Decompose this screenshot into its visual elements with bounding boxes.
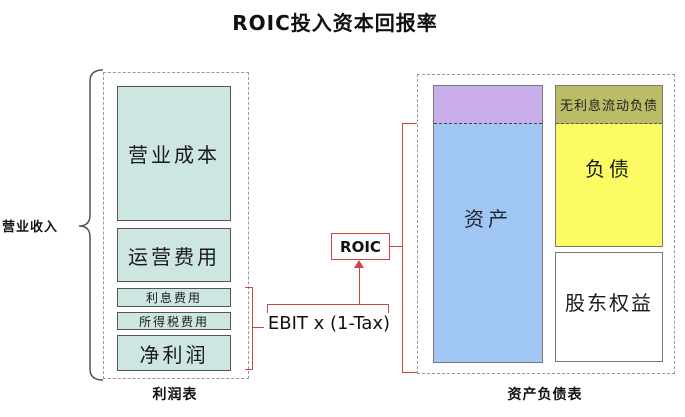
liabilities-column: 无利息流动负债 负债 [555,85,663,247]
balance-sheet-caption: 资产负债表 [417,384,673,404]
invested-capital-bracket-bottom [402,372,417,373]
income-item-operating-expense: 运营费用 [117,228,231,282]
diagram-title: ROIC投入资本回报率 [150,7,520,36]
invested-capital-bracket-top [402,123,417,124]
left-curly-brace [74,68,106,382]
ebit-top-bracket-left-tick [267,304,268,313]
roic-diagram: ROIC投入资本回报率 营业收入 营业成本 运营费用 利息费用 所得税费用 净利… [0,0,685,417]
ebit-top-bracket-right-tick [388,304,389,313]
assets-noninterest-section [434,86,542,124]
equity-box: 股东权益 [555,252,663,362]
assets-label: 资产 [434,124,542,362]
ebit-group-bracket [252,287,253,370]
income-item-net-profit: 净利润 [117,335,231,371]
assets-column: 资产 [433,85,543,363]
income-item-income-tax: 所得税费用 [117,312,231,330]
roic-arrowhead-icon [354,260,364,268]
roic-arrow-line [359,267,360,305]
ebit-group-bracket-top-tick [245,287,253,288]
ebit-top-bracket [267,304,389,305]
ebit-formula-label: EBIT x (1-Tax) [258,313,400,334]
ebit-group-bracket-bottom-tick [245,369,253,370]
revenue-bracket-label: 营业收入 [2,216,66,235]
noninterest-liabilities-label: 无利息流动负债 [556,86,662,124]
income-item-interest-expense: 利息费用 [117,288,231,307]
invested-capital-bracket [402,123,403,373]
income-statement-caption: 利润表 [103,384,247,404]
income-item-operating-cost: 营业成本 [117,86,231,221]
liabilities-label: 负债 [556,124,662,246]
roic-box: ROIC [331,233,390,260]
